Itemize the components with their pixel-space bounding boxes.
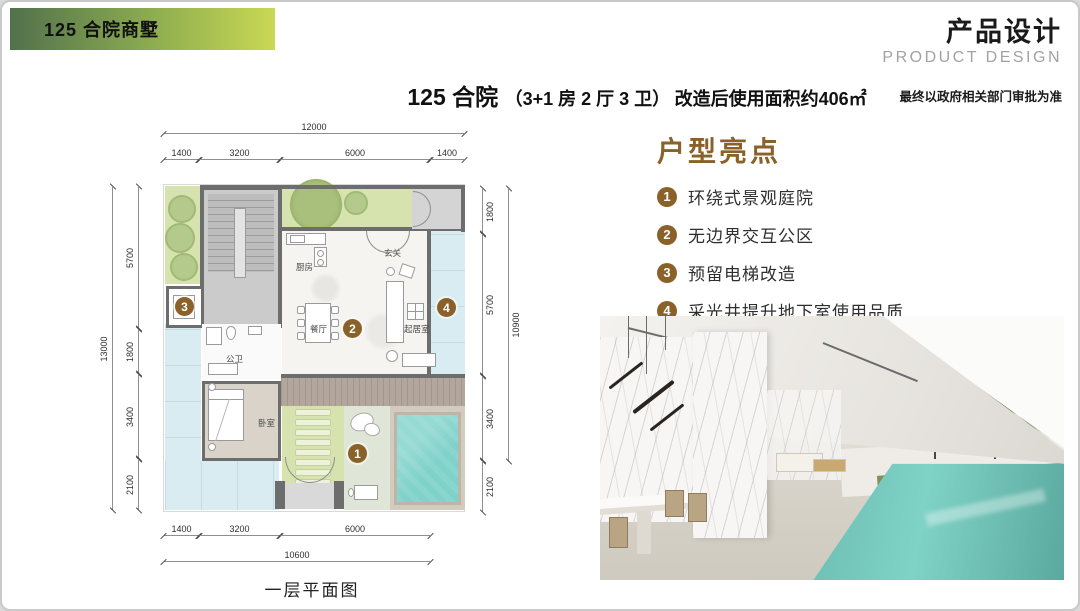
dining-chair xyxy=(297,332,305,340)
pendant-cable xyxy=(665,316,666,350)
dim-label: 3200 xyxy=(227,525,251,534)
dim-left-seg: 1800 xyxy=(138,329,139,374)
dim-label: 1400 xyxy=(169,149,193,158)
dim-label: 5700 xyxy=(486,293,495,317)
highlight-number-badge: 2 xyxy=(657,225,677,245)
dim-left-seg: 3400 xyxy=(138,374,139,459)
pendant-cable xyxy=(646,316,647,374)
dim-label: 13000 xyxy=(100,334,109,363)
pool xyxy=(394,412,461,505)
dim-right-seg: 5700 xyxy=(482,234,483,376)
dim-right-overall: 10900 xyxy=(508,189,509,461)
tree-icon xyxy=(165,223,195,253)
dining-chair xyxy=(331,332,339,340)
kitchen-sink xyxy=(290,235,305,243)
stove-burner-icon xyxy=(317,250,324,257)
tree-icon xyxy=(170,253,198,281)
dim-right-seg: 1800 xyxy=(482,189,483,234)
stepping-stone xyxy=(295,449,331,456)
dim-top-seg: 6000 xyxy=(280,159,430,160)
dim-right-seg: 3400 xyxy=(482,376,483,461)
stepping-stone xyxy=(295,439,331,446)
highlight-number-badge: 1 xyxy=(657,187,677,207)
dim-left-seg: 2100 xyxy=(138,459,139,510)
photo-sofa xyxy=(813,459,845,472)
dim-bottom-seg: 3200 xyxy=(199,535,280,536)
highlight-label: 无边界交互公区 xyxy=(688,222,814,247)
dim-top-seg: 1400 xyxy=(430,159,464,160)
wall-segment xyxy=(461,185,465,232)
entry-floor xyxy=(277,483,342,509)
dim-top-overall: 12000 xyxy=(164,133,464,134)
interior-render-photo xyxy=(600,316,1064,580)
sofa xyxy=(402,353,436,367)
entry-post xyxy=(334,481,344,509)
dim-left-seg: 5700 xyxy=(138,187,139,329)
dim-bottom-seg: 6000 xyxy=(280,535,430,536)
photo-chair xyxy=(688,493,707,522)
dining-chair xyxy=(297,319,305,327)
dim-label: 10900 xyxy=(512,310,521,339)
dim-label: 1800 xyxy=(126,339,135,363)
room-label-bedroom: 卧室 xyxy=(258,417,275,429)
outdoor-grill xyxy=(354,485,378,500)
room-label-kitchen: 厨房 xyxy=(296,261,313,273)
stepping-stone xyxy=(295,409,331,416)
dim-label: 1400 xyxy=(169,525,193,534)
plan-marker-2: 2 xyxy=(343,319,362,338)
floor-plan: 3 厨房 玄关 餐厅 2 起居室 4 xyxy=(163,184,465,512)
dim-top-seg: 3200 xyxy=(199,159,280,160)
dim-label: 6000 xyxy=(343,525,367,534)
header-disclaimer: 最终以政府相关部门审批为准 xyxy=(899,86,1062,105)
pendant-cable xyxy=(628,316,629,358)
stepping-stone xyxy=(295,419,331,426)
dim-left-overall: 13000 xyxy=(112,187,113,510)
dim-label: 1800 xyxy=(486,199,495,223)
plan-main-title: 125 合院 （3+1 房 2 厅 3 卫） 改造后使用面积约406㎡ xyxy=(402,78,872,112)
dim-bottom-overall: 10600 xyxy=(164,561,430,562)
dining-chair xyxy=(331,306,339,314)
highlights-panel: 户型亮点 1 环绕式景观庭院 2 无边界交互公区 3 预留电梯改造 4 采光井提… xyxy=(657,130,1057,336)
highlight-item: 3 预留电梯改造 xyxy=(657,260,1057,285)
closet xyxy=(208,363,238,375)
plan-spec: （3+1 房 2 厅 3 卫） xyxy=(505,89,671,109)
plan-marker-3: 3 xyxy=(175,297,194,316)
room-label-dining: 餐厅 xyxy=(310,323,327,335)
highlight-item: 2 无边界交互公区 xyxy=(657,222,1057,247)
dim-label: 1400 xyxy=(435,149,459,158)
header-block: 产品设计 PRODUCT DESIGN xyxy=(882,18,1062,67)
light-well-bottom-left xyxy=(165,461,279,510)
dining-chair xyxy=(297,306,305,314)
dim-label: 10600 xyxy=(282,551,311,560)
highlight-label: 预留电梯改造 xyxy=(688,260,796,285)
shower xyxy=(206,327,222,345)
slide: 125 合院商墅 产品设计 PRODUCT DESIGN 最终以政府相关部门审批… xyxy=(0,0,1080,611)
stepping-stone xyxy=(295,429,331,436)
plan-area-note: 改造后使用面积约406㎡ xyxy=(675,89,867,109)
plan-marker-1: 1 xyxy=(348,444,367,463)
sofa xyxy=(386,281,404,343)
highlight-number-badge: 3 xyxy=(657,263,677,283)
dim-label: 5700 xyxy=(126,246,135,270)
photo-chair xyxy=(609,517,628,549)
plan-marker-4: 4 xyxy=(437,298,456,317)
dim-label: 2100 xyxy=(126,472,135,496)
dim-label: 6000 xyxy=(343,149,367,158)
page-banner: 125 合院商墅 xyxy=(10,8,275,50)
coffee-table-line xyxy=(407,311,424,312)
stair-rail xyxy=(234,208,246,278)
dim-top-seg: 1400 xyxy=(164,159,199,160)
dining-chair xyxy=(331,319,339,327)
dim-label: 2100 xyxy=(486,474,495,498)
dim-right-seg: 2100 xyxy=(482,461,483,512)
dim-label: 3200 xyxy=(227,149,251,158)
highlight-label: 环绕式景观庭院 xyxy=(688,184,814,209)
dim-bottom-seg: 1400 xyxy=(164,535,199,536)
nightstand xyxy=(208,443,216,451)
entry-post xyxy=(275,481,285,509)
highlights-title: 户型亮点 xyxy=(657,130,1057,170)
stove-burner-icon xyxy=(317,259,324,266)
side-table xyxy=(386,350,398,362)
plan-name: 125 合院 xyxy=(407,84,498,110)
side-table xyxy=(386,267,395,276)
banner-label: 125 合院商墅 xyxy=(44,16,159,42)
tree-icon xyxy=(344,191,368,215)
photo-chair xyxy=(665,490,684,516)
dim-label: 3400 xyxy=(126,404,135,428)
nightstand xyxy=(208,383,216,391)
tree-icon xyxy=(168,195,196,223)
floor-plan-caption: 一层平面图 xyxy=(227,576,397,601)
staircase xyxy=(200,186,282,328)
photo-table-leg xyxy=(637,511,651,553)
bathroom-sink xyxy=(248,326,262,335)
room-label-living: 起居室 xyxy=(404,323,430,335)
outdoor-grill-knob xyxy=(348,488,354,497)
header-title-cn: 产品设计 xyxy=(882,18,1062,48)
highlight-item: 1 环绕式景观庭院 xyxy=(657,184,1057,209)
terrace-deck xyxy=(281,378,465,406)
header-title-en: PRODUCT DESIGN xyxy=(882,48,1062,67)
dim-label: 3400 xyxy=(486,406,495,430)
dim-label: 12000 xyxy=(299,123,328,132)
